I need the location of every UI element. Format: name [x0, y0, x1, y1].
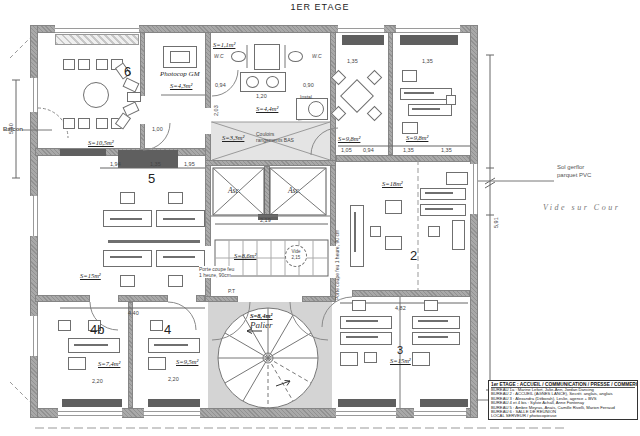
- desk-edge: [425, 192, 453, 194]
- desk: [412, 332, 460, 345]
- desk-edge: [412, 108, 440, 110]
- dim-label: 1,35: [347, 58, 358, 64]
- chair: [352, 300, 366, 311]
- vide-sur-cour-label: Vide sur Cour: [543, 203, 620, 212]
- dim-label: 5,60: [8, 123, 14, 134]
- dim-label: 1,95: [184, 161, 195, 167]
- desk: [350, 205, 364, 267]
- boiler: [308, 101, 324, 117]
- chair: [150, 320, 163, 331]
- desk: [156, 250, 205, 267]
- side-table: [340, 352, 358, 366]
- room3-area: S=15m²: [390, 357, 411, 364]
- dim-label: 1,00: [152, 126, 163, 132]
- dim-label: 0,90: [303, 82, 314, 88]
- desk: [420, 188, 466, 200]
- room4b-area: S=7,4m²: [98, 360, 120, 367]
- cabinet: [446, 172, 468, 185]
- desk-edge: [163, 218, 195, 220]
- desk-edge: [346, 336, 378, 338]
- chair: [63, 59, 75, 70]
- desk-edge: [163, 256, 195, 258]
- floor-note-1: Sol gerflor: [557, 164, 584, 170]
- side-table: [148, 357, 166, 370]
- toilet: [288, 51, 303, 62]
- page-title: 1ER ETAGE: [0, 2, 640, 12]
- desk-edge: [74, 344, 108, 346]
- side-table: [385, 200, 402, 214]
- desk: [420, 204, 466, 216]
- storage-name-2: rangements BAS: [256, 137, 294, 143]
- desk: [340, 316, 392, 329]
- side-table: [68, 357, 86, 370]
- desk-edge: [346, 320, 378, 322]
- chair: [120, 275, 135, 287]
- dim-label: 5,91: [493, 217, 499, 228]
- instal-area: S=4,4m²: [256, 105, 278, 112]
- elevator-label-left: Asc.: [228, 186, 241, 195]
- photocop-area: S=4,3m²: [170, 82, 192, 89]
- meeting-table: [83, 82, 109, 108]
- dim-label: 0,94: [215, 82, 226, 88]
- desk: [408, 104, 452, 116]
- chair: [402, 70, 417, 82]
- chair: [78, 118, 90, 129]
- photocopier-top: [170, 51, 190, 63]
- desk: [400, 88, 452, 100]
- cluster-bar: [108, 240, 200, 243]
- chair: [96, 118, 108, 129]
- legend-box: 1er ETAGE : ACCUEIL / COMMUNICATION / PR…: [488, 380, 638, 420]
- dim-label: 4,40: [128, 310, 139, 316]
- desk-edge: [354, 212, 356, 252]
- desk-edge: [425, 208, 453, 210]
- chair: [127, 92, 141, 102]
- instal-name: Instal.: [300, 94, 313, 100]
- chair: [446, 95, 456, 105]
- vide-circle: Vide 2,15: [285, 245, 307, 267]
- room4-area: S=9,5m²: [176, 358, 198, 365]
- palier-area: S=8,4m²: [250, 312, 272, 319]
- chair: [120, 192, 135, 204]
- desk: [340, 332, 392, 345]
- sink: [266, 76, 279, 88]
- dim-label: 1,35: [403, 147, 414, 153]
- fire-door-left-2: 1 heure, 90cm: [199, 272, 231, 278]
- sink: [246, 76, 259, 88]
- desk: [412, 316, 460, 329]
- wc-area: S=1,1m²: [213, 41, 235, 48]
- chair: [364, 352, 377, 363]
- room5-area: S=15m²: [80, 272, 101, 279]
- desk-edge: [110, 218, 142, 220]
- chair: [168, 192, 183, 204]
- room2-number: 2: [410, 248, 417, 263]
- desk: [452, 220, 465, 250]
- vide-label-2: 2,15: [286, 255, 306, 261]
- desk: [103, 250, 152, 267]
- chair: [424, 300, 438, 311]
- side-table: [385, 236, 402, 250]
- room4b-number: 4b: [90, 322, 104, 337]
- chair: [370, 226, 381, 237]
- dim-label: 0,94: [363, 147, 374, 153]
- chair: [428, 226, 440, 237]
- chair: [78, 59, 90, 70]
- desk-edge: [404, 92, 434, 94]
- chair: [63, 118, 75, 129]
- room3-number: 3: [397, 344, 403, 356]
- dim-label: 1,35: [441, 147, 452, 153]
- room4-number: 4: [164, 322, 171, 337]
- dim-label: 1,20: [256, 93, 267, 99]
- wc-right-label: W.C: [312, 53, 322, 59]
- dim-label: 1,94: [110, 161, 121, 167]
- room5-number: 5: [148, 171, 155, 186]
- dim-label: 1,35: [150, 161, 161, 167]
- toilet: [231, 51, 246, 62]
- palier-name: Palier: [250, 320, 273, 330]
- storage-area: S=3,3m²: [222, 134, 244, 141]
- elevator-label-right: Asc.: [288, 186, 301, 195]
- desk-edge: [418, 320, 448, 322]
- chair: [402, 122, 418, 134]
- topright-right-area: S=9,8m²: [406, 134, 428, 141]
- room2-area: S=18m²: [382, 180, 403, 187]
- printer-stand: [58, 320, 71, 331]
- room6-area: S=10,5m²: [88, 139, 114, 146]
- room6-number: 6: [124, 64, 131, 79]
- duct: [254, 44, 280, 70]
- chair: [96, 59, 108, 70]
- wc-left-label: W.C: [214, 53, 224, 59]
- floor-plan: 1ER ETAGE: [0, 0, 640, 436]
- chair: [168, 275, 183, 287]
- dim-label: 2,03: [213, 105, 219, 116]
- legend-line: LOCAL SERVEUR / photocopieuse: [491, 414, 635, 418]
- dim-label: 2,19: [260, 217, 271, 223]
- desk-edge: [154, 344, 188, 346]
- side-table: [412, 352, 430, 366]
- fire-door-right: Porte coupe feu 1 heure, 90 cm: [334, 230, 340, 300]
- desk-edge: [110, 256, 142, 258]
- floor-note-2: parquet PVC: [557, 172, 591, 178]
- dim-label: 2,20: [168, 376, 179, 382]
- pt-label: P.T: [228, 288, 235, 294]
- desk-edge: [418, 336, 448, 338]
- photocop-name: Photocop GM: [160, 70, 199, 78]
- hall-area: S=8,6m²: [234, 252, 256, 259]
- topright-left-area: S=9,8m²: [338, 135, 360, 142]
- dim-label: 1,35: [422, 58, 433, 64]
- dim-label: 2,20: [92, 378, 103, 384]
- dim-label: 4,82: [395, 305, 406, 311]
- dim-label: 1,05: [341, 147, 352, 153]
